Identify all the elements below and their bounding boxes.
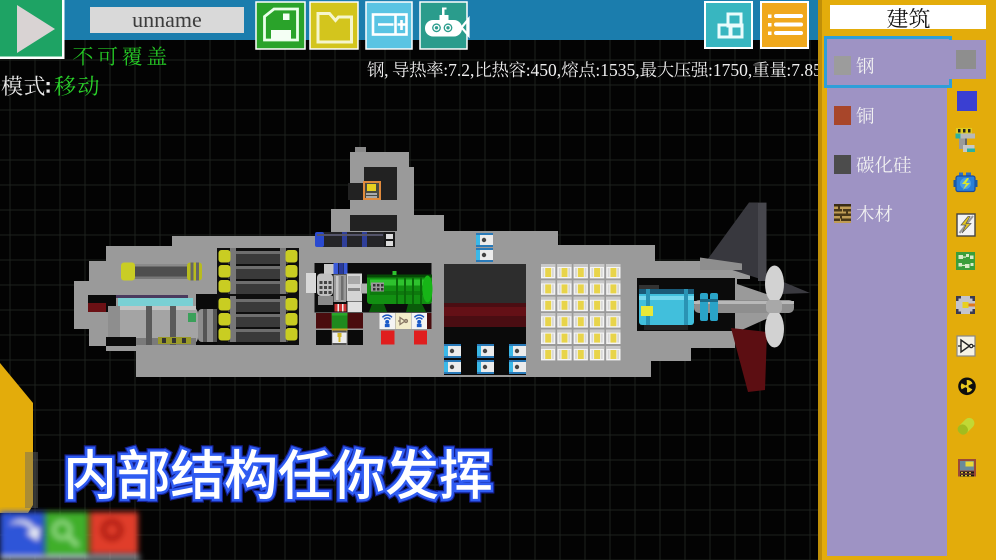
svg-text::450,: :450,	[526, 60, 562, 80]
svg-text::7.85: :7.85	[786, 60, 822, 80]
svg-text::7.2,: :7.2,	[443, 60, 474, 80]
svg-text:,: ,	[384, 60, 388, 80]
svg-text:unname: unname	[132, 7, 202, 32]
svg-text::1535,: :1535,	[595, 60, 639, 80]
svg-text::1750,: :1750,	[708, 60, 752, 80]
